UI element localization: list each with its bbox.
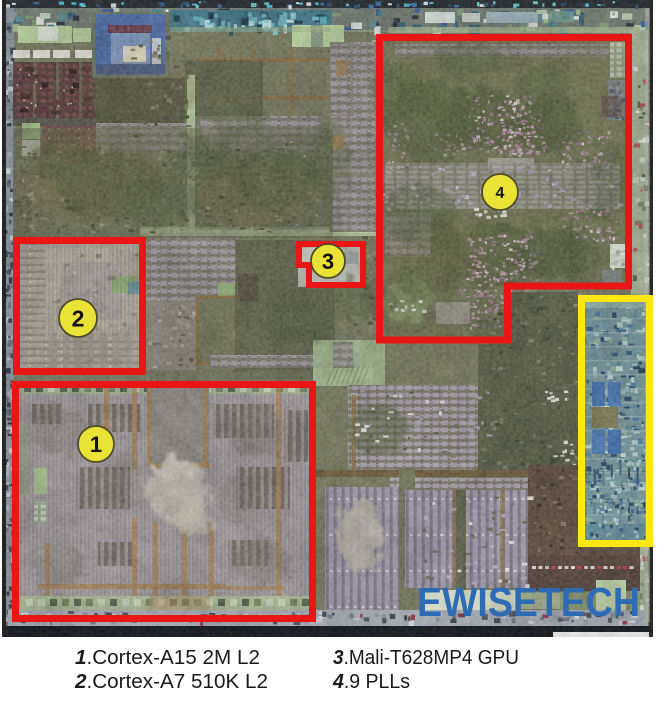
svg-text:1.Cortex-A15 2M L2: 1.Cortex-A15 2M L2 [75, 647, 260, 669]
svg-text:2: 2 [72, 305, 85, 331]
svg-text:2.Cortex-A7 510K L2: 2.Cortex-A7 510K L2 [74, 671, 268, 693]
svg-text:4: 4 [496, 185, 505, 202]
svg-text:4.9 PLLs: 4.9 PLLs [332, 671, 410, 693]
svg-text:3: 3 [322, 249, 334, 274]
svg-text:3.Mali-T628MP4 GPU: 3.Mali-T628MP4 GPU [333, 647, 519, 669]
svg-text:EWISETECH: EWISETECH [417, 579, 640, 625]
svg-text:1: 1 [90, 432, 102, 457]
